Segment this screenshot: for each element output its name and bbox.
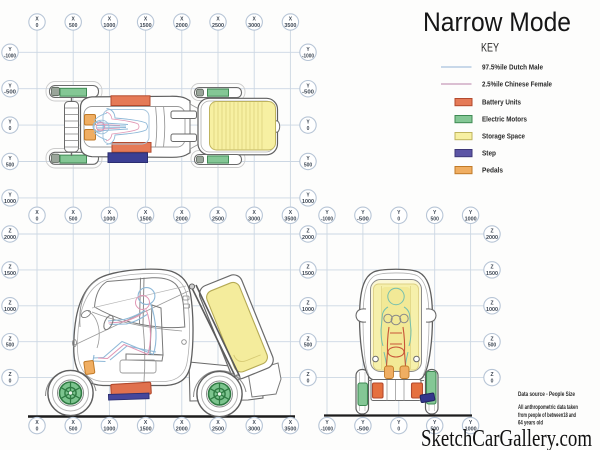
svg-text:0: 0 [397, 216, 400, 222]
svg-text:0: 0 [9, 126, 12, 132]
svg-text:500: 500 [6, 163, 15, 169]
svg-text:Narrow Mode: Narrow Mode [423, 7, 571, 37]
svg-text:Battery Units: Battery Units [482, 98, 521, 107]
svg-text:0: 0 [491, 379, 494, 385]
svg-text:Data source - People Size: Data source - People Size [518, 391, 575, 398]
svg-text:500: 500 [304, 163, 313, 169]
svg-text:1500: 1500 [140, 216, 152, 222]
svg-text:Z: Z [8, 336, 11, 342]
svg-text:500: 500 [69, 216, 78, 222]
svg-text:1000: 1000 [103, 23, 115, 29]
svg-text:3000: 3000 [248, 216, 260, 222]
svg-text:-1000: -1000 [4, 53, 16, 59]
svg-text:2000: 2000 [176, 427, 188, 433]
svg-text:2000: 2000 [176, 23, 188, 29]
svg-text:Z: Z [306, 265, 309, 271]
svg-text:2500: 2500 [212, 427, 224, 433]
svg-text:3000: 3000 [248, 427, 260, 433]
svg-text:Z: Z [8, 300, 11, 306]
svg-text:Z: Z [8, 265, 11, 271]
svg-text:1500: 1500 [4, 271, 16, 277]
svg-text:-500: -500 [357, 427, 369, 433]
svg-text:Pedals: Pedals [482, 166, 503, 175]
svg-text:-1000: -1000 [302, 53, 314, 59]
svg-text:3500: 3500 [284, 23, 296, 29]
svg-text:Z: Z [306, 372, 309, 378]
svg-text:1000: 1000 [4, 199, 16, 205]
svg-text:2500: 2500 [212, 23, 224, 29]
svg-text:Z: Z [490, 265, 493, 271]
svg-text:0: 0 [36, 427, 39, 433]
svg-text:KEY: KEY [481, 41, 499, 55]
svg-text:1000: 1000 [103, 216, 115, 222]
svg-text:2500: 2500 [212, 216, 224, 222]
svg-text:-1000: -1000 [321, 216, 333, 222]
svg-text:3500: 3500 [284, 216, 296, 222]
svg-text:Z: Z [306, 229, 309, 235]
svg-text:2000: 2000 [176, 216, 188, 222]
svg-text:500: 500 [488, 343, 497, 349]
svg-text:Z: Z [490, 229, 493, 235]
svg-text:1500: 1500 [302, 271, 314, 277]
svg-text:0: 0 [36, 23, 39, 29]
svg-text:3500: 3500 [284, 427, 296, 433]
svg-text:Z: Z [8, 372, 11, 378]
svg-text:2000: 2000 [4, 235, 16, 241]
svg-text:500: 500 [304, 343, 313, 349]
svg-text:-1000: -1000 [321, 427, 333, 433]
svg-text:1000: 1000 [302, 307, 314, 313]
svg-text:1000: 1000 [4, 307, 16, 313]
svg-text:1500: 1500 [140, 23, 152, 29]
svg-text:Electric Motors: Electric Motors [482, 115, 527, 124]
svg-text:Z: Z [8, 229, 11, 235]
svg-text:2000: 2000 [486, 235, 498, 241]
svg-text:SketchCarGallery.com: SketchCarGallery.com [421, 426, 592, 450]
svg-text:Z: Z [306, 336, 309, 342]
svg-text:0: 0 [307, 126, 310, 132]
svg-text:500: 500 [69, 23, 78, 29]
svg-text:0: 0 [307, 379, 310, 385]
svg-text:Z: Z [490, 300, 493, 306]
svg-text:All anthropometric data taken: All anthropometric data taken [518, 404, 578, 411]
svg-text:1500: 1500 [140, 427, 152, 433]
svg-text:Z: Z [490, 372, 493, 378]
svg-text:-500: -500 [302, 90, 314, 96]
svg-text:from people of between18 and: from people of between18 and [518, 412, 576, 419]
svg-text:-500: -500 [4, 90, 16, 96]
svg-text:2.5%ile Chinese Female: 2.5%ile Chinese Female [482, 80, 552, 89]
svg-text:0: 0 [397, 427, 400, 433]
svg-text:0: 0 [9, 379, 12, 385]
svg-text:Storage Space: Storage Space [482, 132, 525, 141]
svg-text:500: 500 [431, 216, 440, 222]
svg-text:97.5%ile Dutch Male: 97.5%ile Dutch Male [482, 63, 543, 72]
svg-text:3000: 3000 [248, 23, 260, 29]
svg-text:-500: -500 [357, 216, 369, 222]
svg-text:1500: 1500 [486, 271, 498, 277]
svg-text:500: 500 [69, 427, 78, 433]
svg-text:Z: Z [490, 336, 493, 342]
svg-text:2000: 2000 [302, 235, 314, 241]
svg-text:Z: Z [306, 300, 309, 306]
svg-text:1000: 1000 [486, 307, 498, 313]
svg-text:500: 500 [6, 343, 15, 349]
svg-text:1000: 1000 [103, 427, 115, 433]
svg-text:1000: 1000 [302, 199, 314, 205]
svg-text:0: 0 [36, 216, 39, 222]
svg-text:Step: Step [482, 149, 497, 158]
svg-text:1000: 1000 [465, 216, 477, 222]
